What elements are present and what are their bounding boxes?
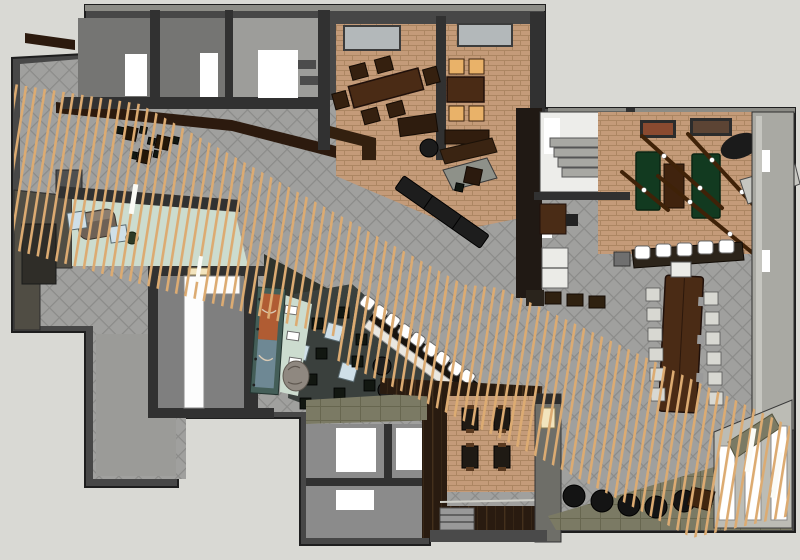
skylight xyxy=(344,26,400,50)
round-table xyxy=(420,139,438,157)
desk xyxy=(540,204,566,234)
door-white xyxy=(125,54,147,96)
right-window-wall xyxy=(752,112,794,430)
boulder xyxy=(283,361,309,391)
tall-partition-wall xyxy=(516,108,542,298)
restroom-wing xyxy=(306,392,440,538)
head-stand xyxy=(671,262,691,277)
floorplan-stage xyxy=(0,0,800,560)
floorplan-render xyxy=(0,0,800,560)
steps xyxy=(440,508,474,530)
skylight xyxy=(458,24,512,46)
door-white xyxy=(258,50,298,98)
desk-chair xyxy=(566,214,578,226)
small-table xyxy=(464,167,483,186)
artwork-blue xyxy=(255,339,277,388)
door-white xyxy=(200,53,218,97)
